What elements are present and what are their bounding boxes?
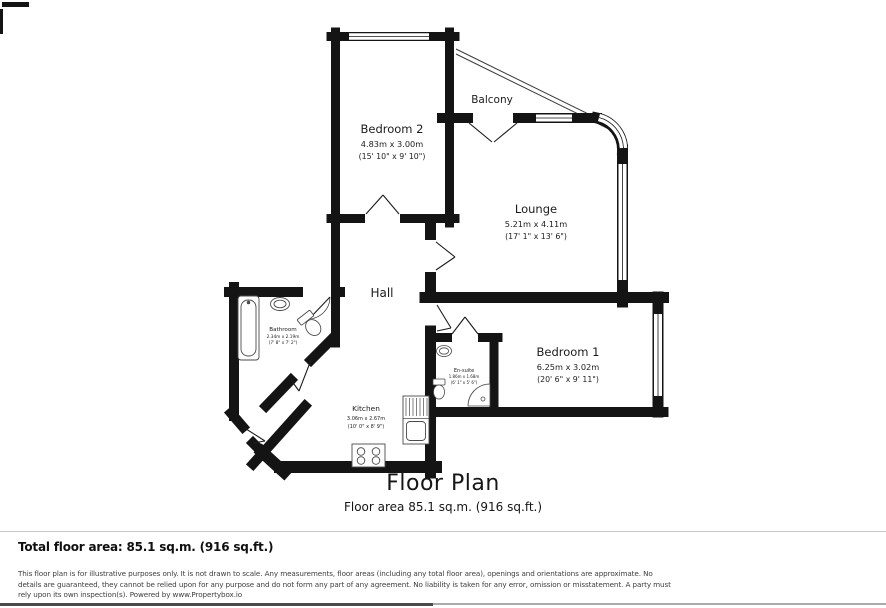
footer-divider [0, 531, 886, 532]
kitchen-label: Kitchen 3.06m x 2.67m (10' 0" x 8' 9") [347, 404, 385, 430]
svg-text:(20' 6" x 9' 11"): (20' 6" x 9' 11") [537, 375, 599, 384]
floorplan-page: Bedroom 2 4.83m x 3.00m (15' 10" x 9' 10… [0, 0, 886, 608]
svg-text:(10' 0" x 8' 9"): (10' 0" x 8' 9") [348, 424, 385, 430]
door-openings [303, 219, 478, 338]
svg-text:Bathroom: Bathroom [269, 327, 296, 333]
hall-label: Hall [370, 286, 393, 300]
svg-text:Lounge: Lounge [515, 202, 557, 216]
floor-plan-drawing: Bedroom 2 4.83m x 3.00m (15' 10" x 9' 10… [0, 0, 886, 530]
page-corner-marks [0, 2, 29, 34]
svg-text:5.21m x 4.11m: 5.21m x 4.11m [505, 219, 567, 229]
bathtub-icon [238, 296, 259, 360]
lounge-label: Lounge 5.21m x 4.11m (17' 1" x 13' 6") [505, 202, 567, 241]
svg-text:Bedroom 1: Bedroom 1 [537, 345, 600, 359]
bottom-rule-light [433, 603, 886, 605]
svg-text:4.83m x 3.00m: 4.83m x 3.00m [361, 139, 423, 149]
svg-text:Hall: Hall [370, 286, 393, 300]
balcony-label: Balcony [471, 94, 513, 106]
svg-text:6.25m x 3.02m: 6.25m x 3.02m [537, 362, 599, 372]
hob-icon [352, 444, 385, 467]
svg-text:Kitchen: Kitchen [352, 404, 380, 413]
kitchen-sink-unit-icon [403, 396, 429, 444]
ensuite-sink-icon [437, 346, 452, 357]
bottom-rule-dark [0, 603, 433, 606]
plan-subtitle: Floor area 85.1 sq.m. (916 sq.ft.) [0, 500, 886, 514]
total-floor-area: Total floor area: 85.1 sq.m. (916 sq.ft.… [18, 540, 273, 554]
shower-icon [468, 384, 490, 406]
bedroom1-label: Bedroom 1 6.25m x 3.02m (20' 6" x 9' 11"… [537, 345, 600, 384]
plan-title: Floor Plan [0, 471, 886, 496]
disclaimer-text: This floor plan is for illustrative purp… [18, 569, 673, 601]
walls [229, 32, 664, 473]
svg-text:(17' 1" x 13' 6"): (17' 1" x 13' 6") [505, 232, 567, 241]
svg-text:Balcony: Balcony [471, 94, 513, 106]
bathroom-sink-icon [271, 298, 290, 311]
svg-text:3.06m x 2.67m: 3.06m x 2.67m [347, 416, 385, 422]
svg-text:Bedroom 2: Bedroom 2 [361, 122, 424, 136]
ensuite-toilet-icon [433, 379, 445, 399]
svg-text:1.86m x 1.68m: 1.86m x 1.68m [449, 374, 480, 379]
svg-text:(15' 10" x 9' 10"): (15' 10" x 9' 10") [359, 152, 426, 161]
ensuite-label: En-suite 1.86m x 1.68m (6' 1" x 5' 6") [449, 368, 480, 385]
bathroom-toilet-icon [297, 310, 325, 339]
svg-text:(6' 1" x 5' 6"): (6' 1" x 5' 6") [451, 380, 478, 385]
bathroom-label: Bathroom 2.34m x 2.19m (7' 8" x 7' 2") [267, 327, 300, 346]
svg-text:(7' 8" x 7' 2"): (7' 8" x 7' 2") [269, 340, 298, 346]
svg-text:2.34m x 2.19m: 2.34m x 2.19m [267, 334, 300, 340]
bedroom2-label: Bedroom 2 4.83m x 3.00m (15' 10" x 9' 10… [359, 122, 426, 161]
